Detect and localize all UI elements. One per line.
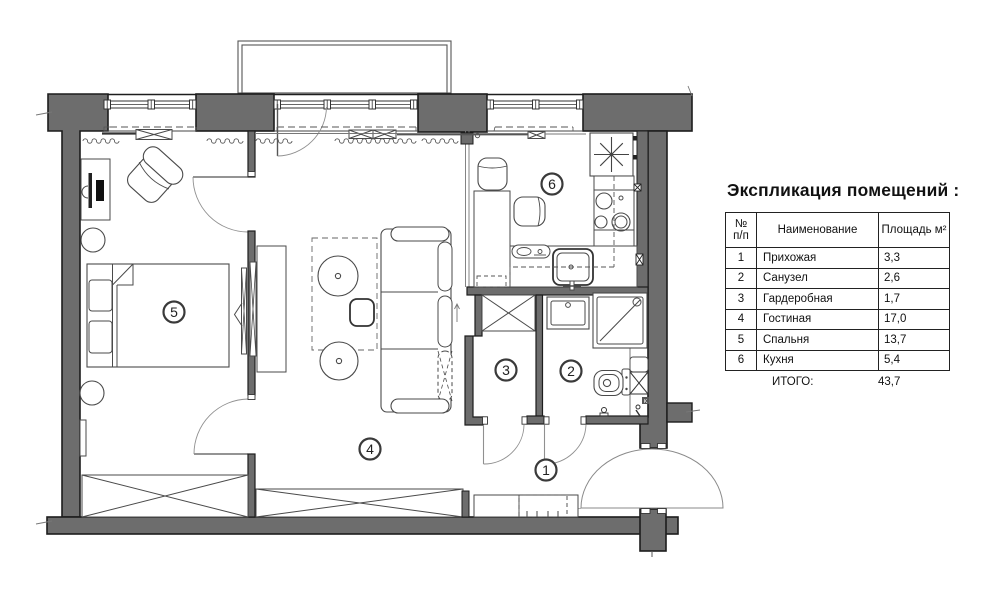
svg-text:5: 5 <box>170 304 178 320</box>
svg-text:6: 6 <box>548 176 556 192</box>
svg-text:3: 3 <box>502 362 510 378</box>
svg-text:1: 1 <box>542 462 550 478</box>
svg-text:K: K <box>644 399 648 405</box>
svg-text:2: 2 <box>567 363 575 379</box>
svg-text:4: 4 <box>366 441 374 457</box>
